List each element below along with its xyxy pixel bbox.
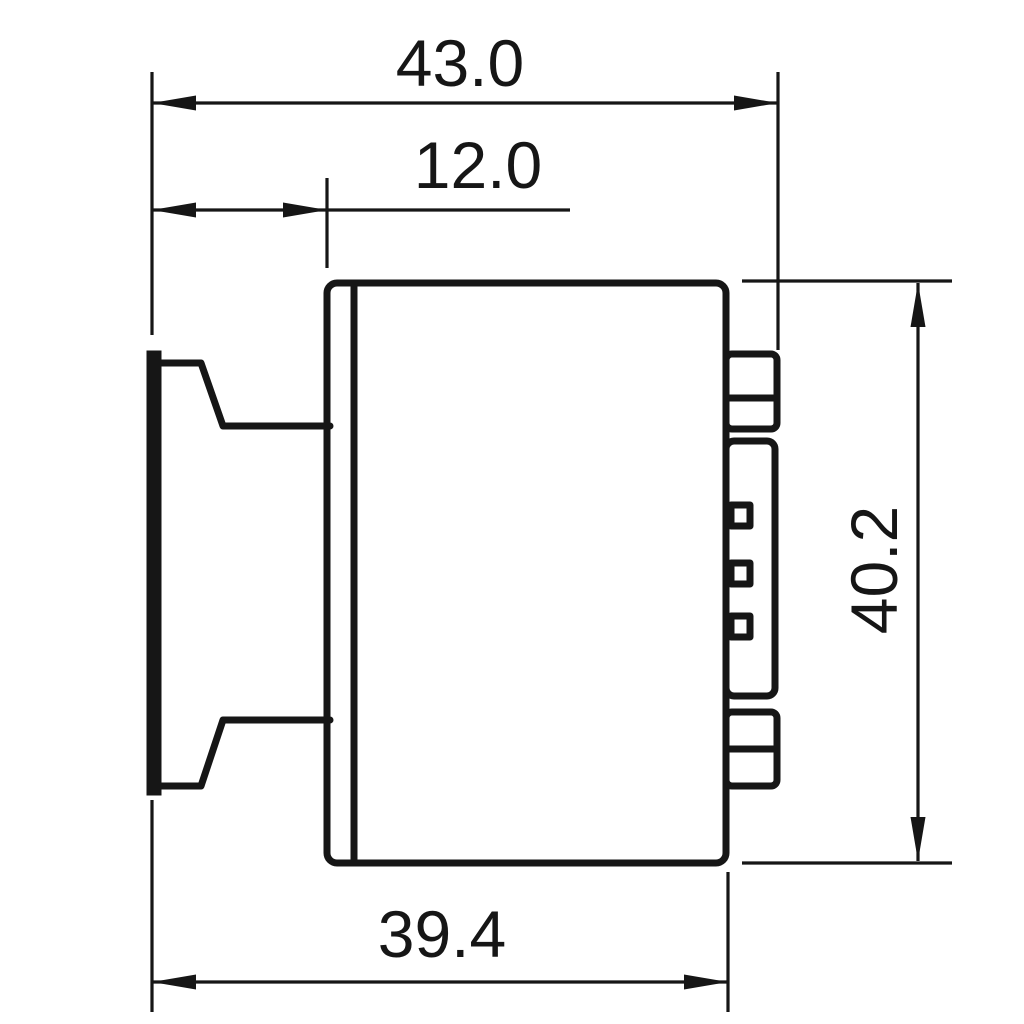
dimension-label-flange-offset: 12.0 — [414, 128, 542, 202]
dimension-label-body-height: 40.2 — [837, 506, 911, 634]
dimension-label-overall-width: 43.0 — [396, 26, 524, 100]
technical-drawing-canvas: 43.0 12.0 39.4 40.2 — [0, 0, 1024, 1024]
dimension-label-body-width: 39.4 — [378, 897, 506, 971]
